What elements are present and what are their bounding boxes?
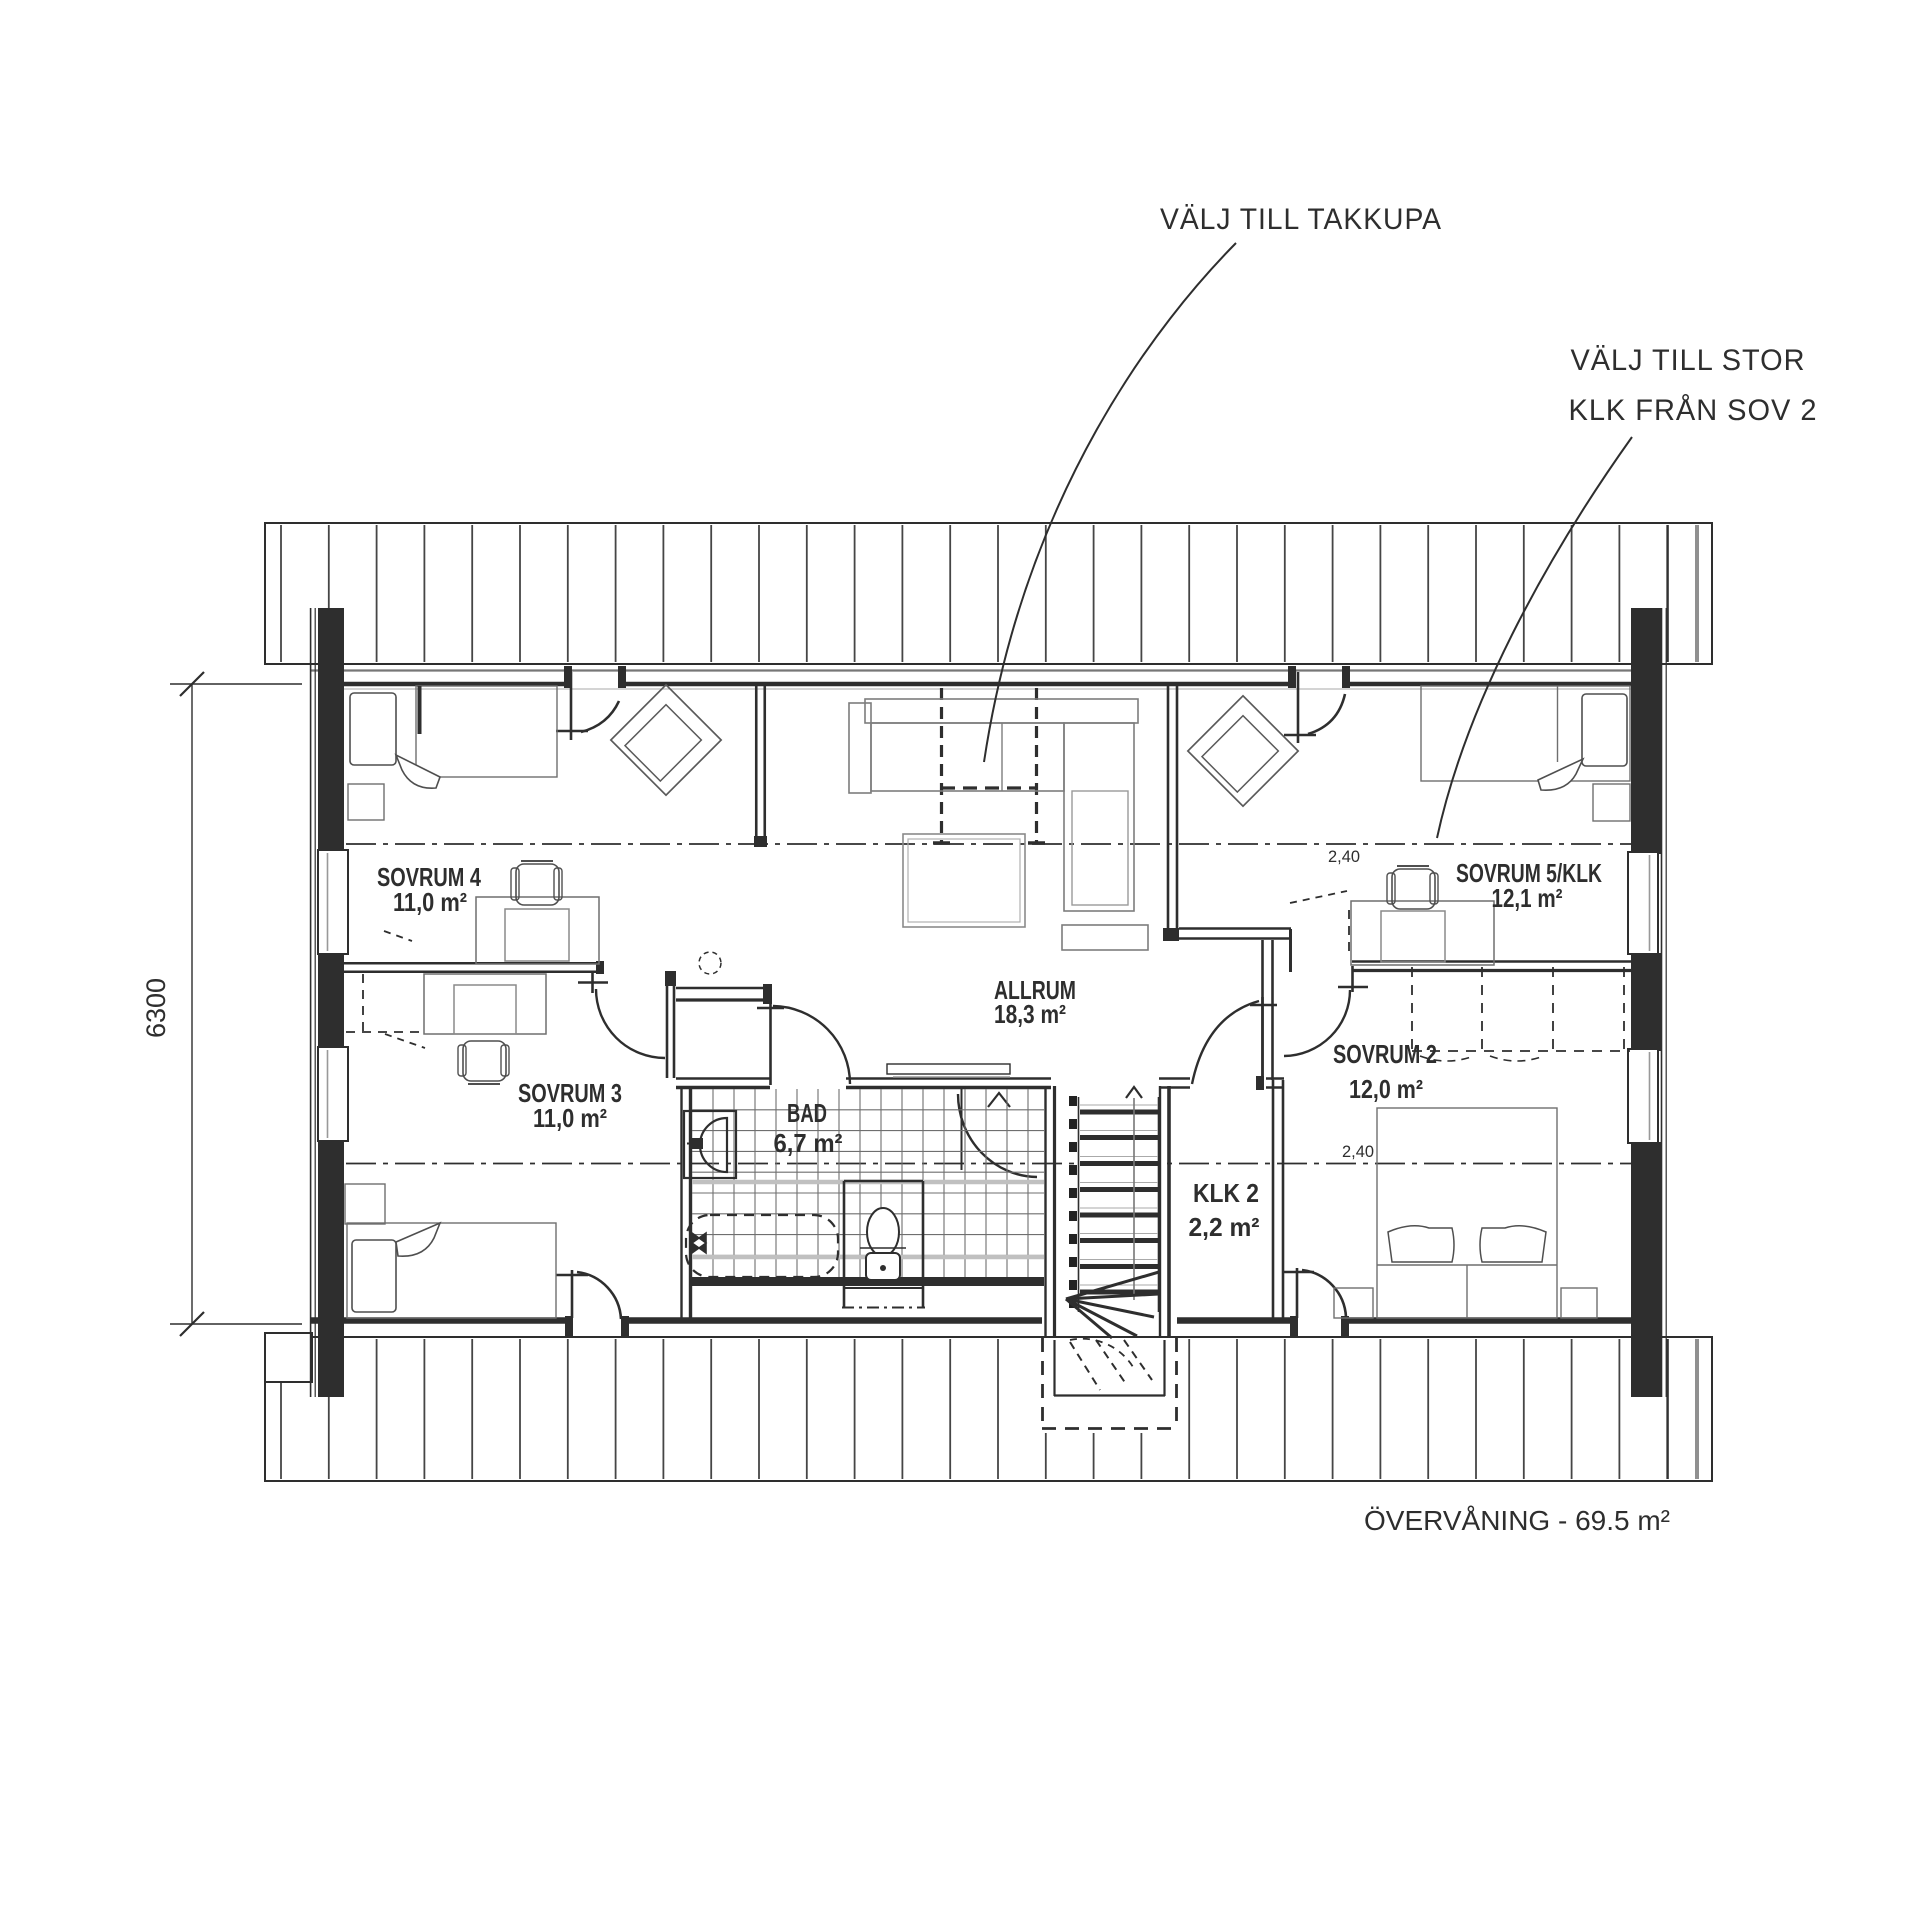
svg-text:12,1 m²: 12,1 m² — [1492, 883, 1563, 913]
svg-text:11,0 m²: 11,0 m² — [533, 1103, 607, 1133]
svg-text:VÄLJ TILL TAKKUPA: VÄLJ TILL TAKKUPA — [1160, 203, 1442, 236]
svg-text:2,2 m²: 2,2 m² — [1189, 1212, 1260, 1242]
svg-text:KLK 2: KLK 2 — [1193, 1178, 1259, 1208]
svg-text:6,7 m²: 6,7 m² — [774, 1128, 843, 1158]
svg-text:12,0 m²: 12,0 m² — [1349, 1074, 1423, 1104]
svg-text:VÄLJ TILL STOR: VÄLJ TILL STOR — [1571, 344, 1806, 377]
svg-text:BAD: BAD — [787, 1098, 827, 1128]
svg-text:6300: 6300 — [141, 978, 171, 1038]
svg-text:2,40: 2,40 — [1342, 1142, 1374, 1161]
svg-text:2,40: 2,40 — [1328, 847, 1360, 866]
svg-text:18,3 m²: 18,3 m² — [994, 999, 1066, 1029]
svg-text:SOVRUM 2: SOVRUM 2 — [1333, 1039, 1437, 1069]
svg-text:11,0 m²: 11,0 m² — [393, 887, 467, 917]
svg-text:KLK FRÅN SOV 2: KLK FRÅN SOV 2 — [1569, 394, 1818, 427]
svg-text:ÖVERVÅNING - 69.5 m²: ÖVERVÅNING - 69.5 m² — [1364, 1505, 1670, 1536]
